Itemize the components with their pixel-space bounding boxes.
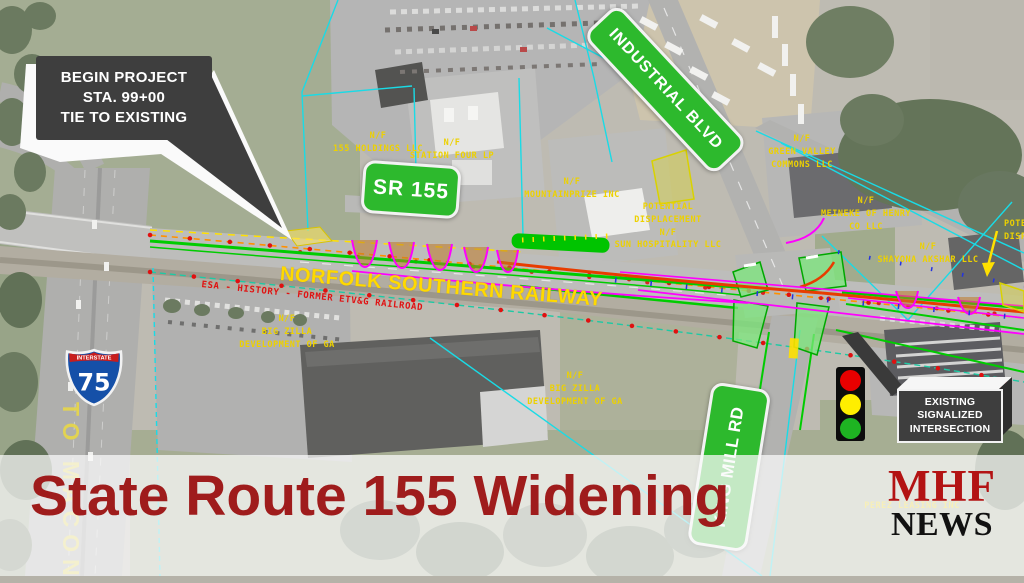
sr155-road-sign: SR 155 — [360, 160, 461, 220]
existing-signal-callout: EXISTING SIGNALIZED INTERSECTION — [897, 389, 1003, 443]
existing-signal-top-facet — [897, 377, 1012, 389]
begin-project-callout: BEGIN PROJECT STA. 99+00 TIE TO EXISTING — [36, 56, 212, 140]
logo-mhf: MHF — [888, 465, 996, 508]
signal-green-light — [840, 418, 861, 439]
sr155-sign-label: SR 155 — [372, 175, 450, 204]
interstate-shield-label: INTERSTATE — [77, 355, 112, 361]
news-map-graphic: { "banner": { "title": "State Route 155 … — [0, 0, 1024, 576]
interstate-shield-number: 75 — [77, 368, 110, 396]
mhf-news-logo: MHF NEWS — [888, 465, 996, 542]
headline: State Route 155 Widening — [30, 468, 729, 525]
title-banner: State Route 155 Widening MHF NEWS — [0, 455, 1024, 576]
signal-yellow-light — [840, 394, 861, 415]
logo-news: NEWS — [888, 508, 996, 542]
signal-red-light — [840, 370, 861, 391]
interstate-75-shield-icon: INTERSTATE 75 — [63, 345, 125, 409]
traffic-signal-icon — [836, 367, 865, 441]
